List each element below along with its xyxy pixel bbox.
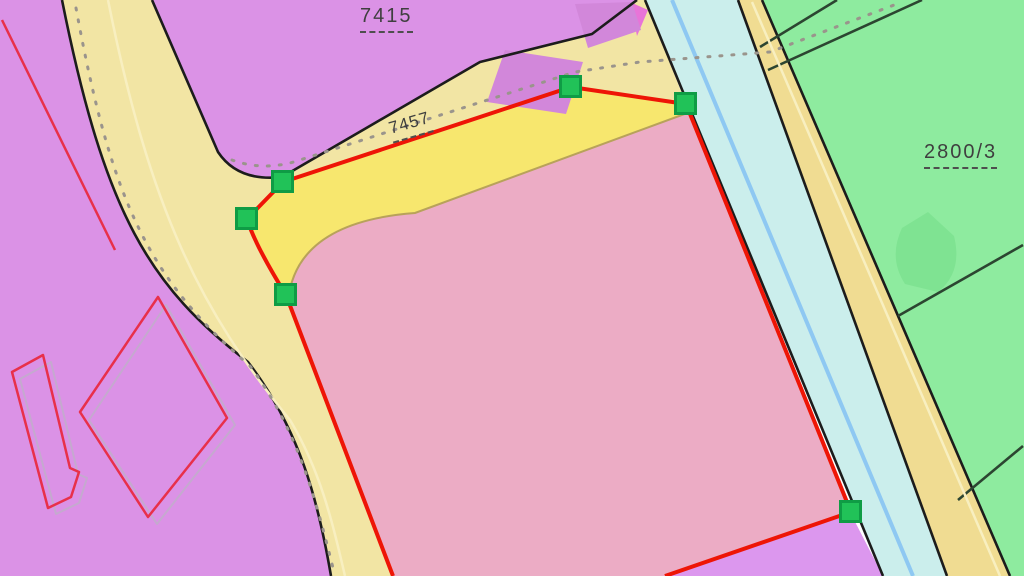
vertex-handle[interactable]	[274, 283, 297, 306]
parcel-label-2800-3: 2800/3	[924, 141, 997, 169]
vertex-handle[interactable]	[559, 75, 582, 98]
map-canvas	[0, 0, 1024, 576]
vertex-handle[interactable]	[839, 500, 862, 523]
cadastral-map-view[interactable]: 7415 7457 2800/3	[0, 0, 1024, 576]
vertex-handle[interactable]	[674, 92, 697, 115]
parcel-label-7415: 7415	[360, 5, 413, 33]
vertex-handle[interactable]	[235, 207, 258, 230]
vertex-handle[interactable]	[271, 170, 294, 193]
